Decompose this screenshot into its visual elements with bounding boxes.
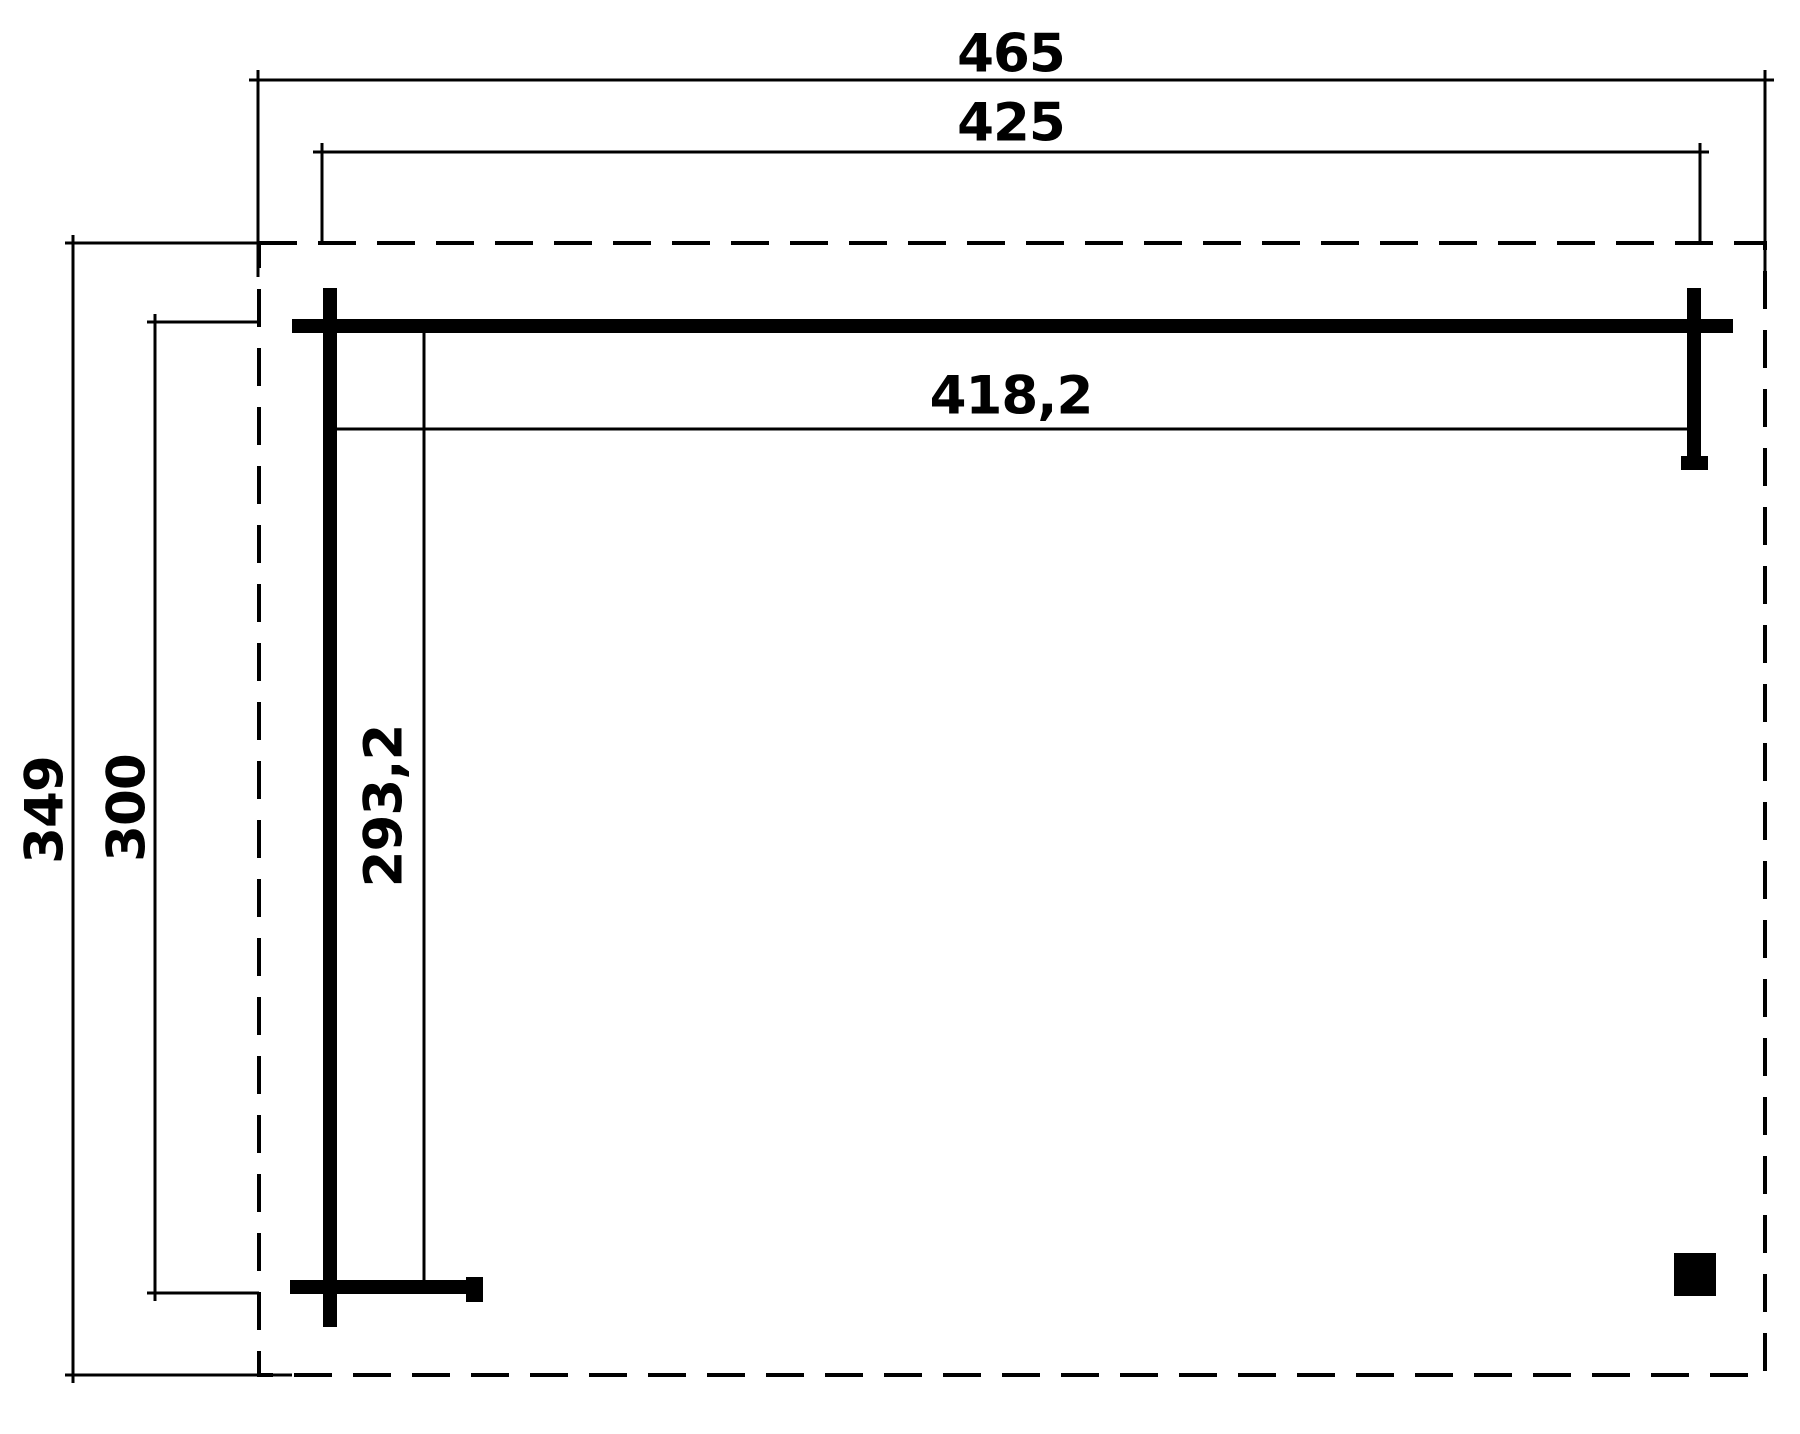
dim-label-roof-width: 465 (957, 28, 1065, 81)
plan-linework (0, 0, 1800, 1434)
dim-label-frame-width: 425 (957, 97, 1065, 150)
dim-label-frame-depth: 300 (101, 754, 154, 862)
corner-post-bottom-right (1674, 1253, 1716, 1296)
dim-label-inner-depth: 293,2 (358, 725, 411, 888)
dim-label-roof-depth: 349 (19, 756, 72, 864)
floor-plan-page: 465 425 418,2 349 300 293,2 (0, 0, 1800, 1434)
post-foot-top-right (1681, 456, 1708, 470)
post-foot-bottom-left (466, 1277, 483, 1302)
dim-label-inner-width: 418,2 (930, 370, 1093, 423)
